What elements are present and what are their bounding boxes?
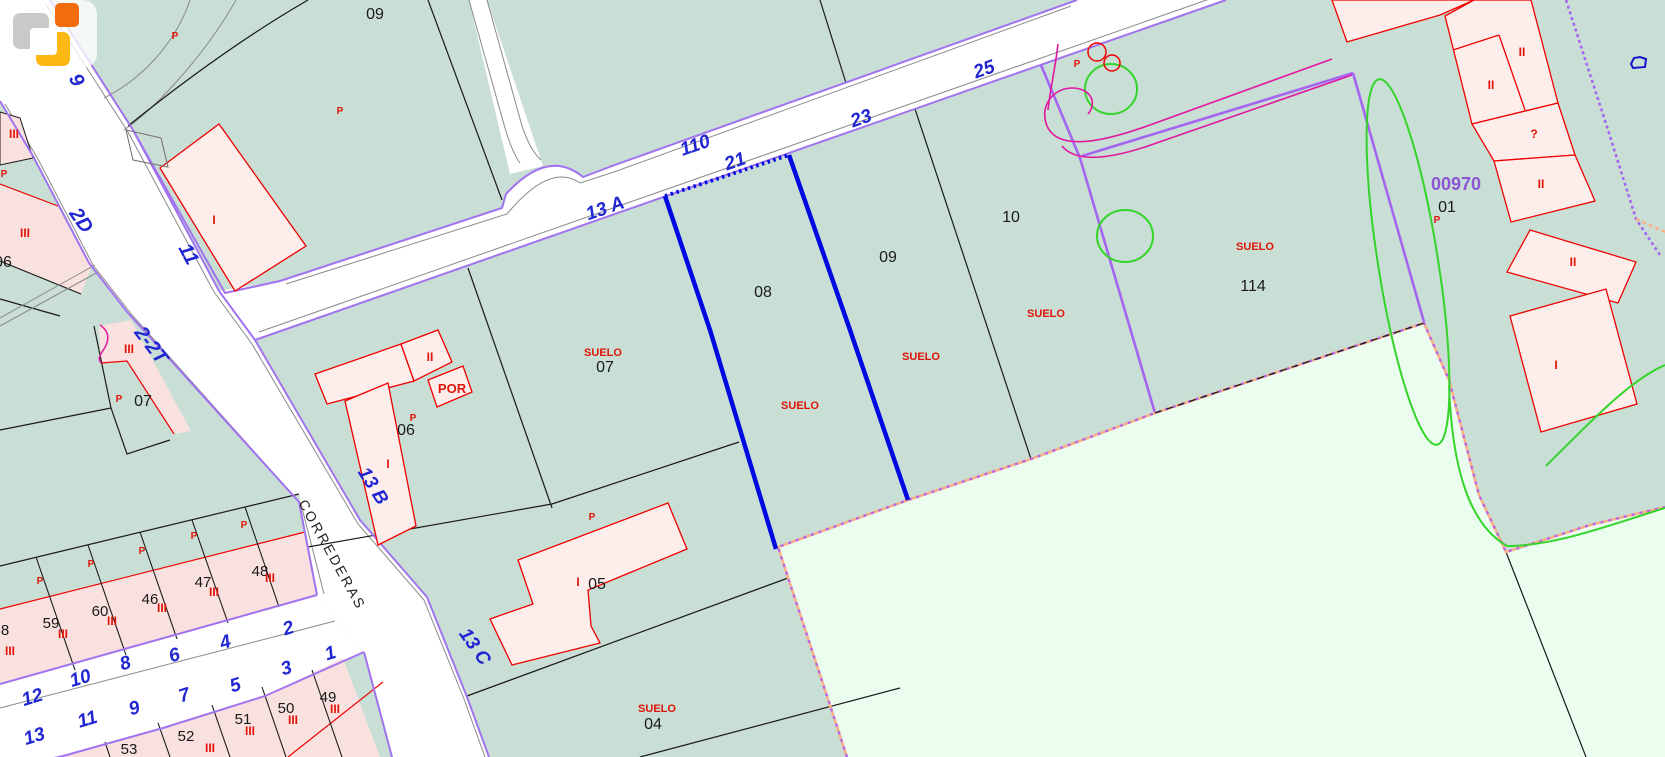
svg-text:10: 10 [1002,209,1020,226]
svg-text:I: I [1554,358,1557,372]
svg-text:P: P [116,394,123,405]
svg-text:06: 06 [0,254,12,271]
svg-text:P: P [88,559,95,570]
svg-text:III: III [124,342,134,356]
svg-text:SUELO: SUELO [781,400,819,412]
svg-text:52: 52 [178,728,195,745]
svg-text:07: 07 [596,359,614,376]
svg-text:P: P [241,520,248,531]
svg-text:P: P [1074,59,1081,70]
svg-text:SUELO: SUELO [1027,308,1065,320]
svg-text:P: P [139,546,146,557]
svg-text:III: III [209,585,219,599]
svg-text:SUELO: SUELO [1236,241,1274,253]
svg-text:III: III [205,741,215,755]
svg-text:SUELO: SUELO [902,351,940,363]
svg-text:8: 8 [1,622,9,639]
svg-text:59: 59 [43,615,60,632]
svg-text:SUELO: SUELO [638,703,676,715]
svg-text:III: III [265,571,275,585]
svg-text:I: I [386,457,389,471]
svg-text:P: P [191,531,198,542]
svg-text:II: II [1570,255,1577,269]
svg-text:46: 46 [142,591,159,608]
svg-text:P: P [589,512,596,523]
svg-text:II: II [1488,78,1495,92]
svg-text:?: ? [1530,127,1537,141]
svg-text:P: P [1,169,8,180]
svg-text:II: II [1538,177,1545,191]
svg-text:114: 114 [1240,278,1266,295]
svg-text:POR: POR [438,381,467,396]
svg-text:01: 01 [1438,199,1456,216]
svg-text:III: III [9,127,19,141]
svg-text:P: P [410,413,417,424]
svg-text:III: III [58,627,68,641]
svg-text:06: 06 [397,422,415,439]
svg-text:III: III [20,226,30,240]
svg-text:P: P [37,576,44,587]
svg-text:II: II [1519,45,1526,59]
svg-text:P: P [172,31,179,42]
svg-text:53: 53 [121,741,138,757]
svg-text:I: I [576,575,579,589]
svg-text:07: 07 [134,393,152,410]
svg-text:III: III [288,713,298,727]
svg-text:09: 09 [366,6,384,23]
svg-text:III: III [245,724,255,738]
svg-text:P: P [337,106,344,117]
svg-text:III: III [157,601,167,615]
svg-text:00970: 00970 [1431,174,1481,194]
svg-text:SUELO: SUELO [584,347,622,359]
svg-text:09: 09 [879,249,897,266]
svg-text:04: 04 [644,716,662,733]
svg-text:II: II [427,350,434,364]
svg-text:P: P [1434,215,1441,226]
svg-text:III: III [107,614,117,628]
svg-text:08: 08 [754,284,772,301]
svg-text:III: III [330,702,340,716]
svg-text:05: 05 [588,576,606,593]
svg-text:I: I [212,213,215,227]
svg-text:60: 60 [92,603,109,620]
svg-text:III: III [5,644,15,658]
